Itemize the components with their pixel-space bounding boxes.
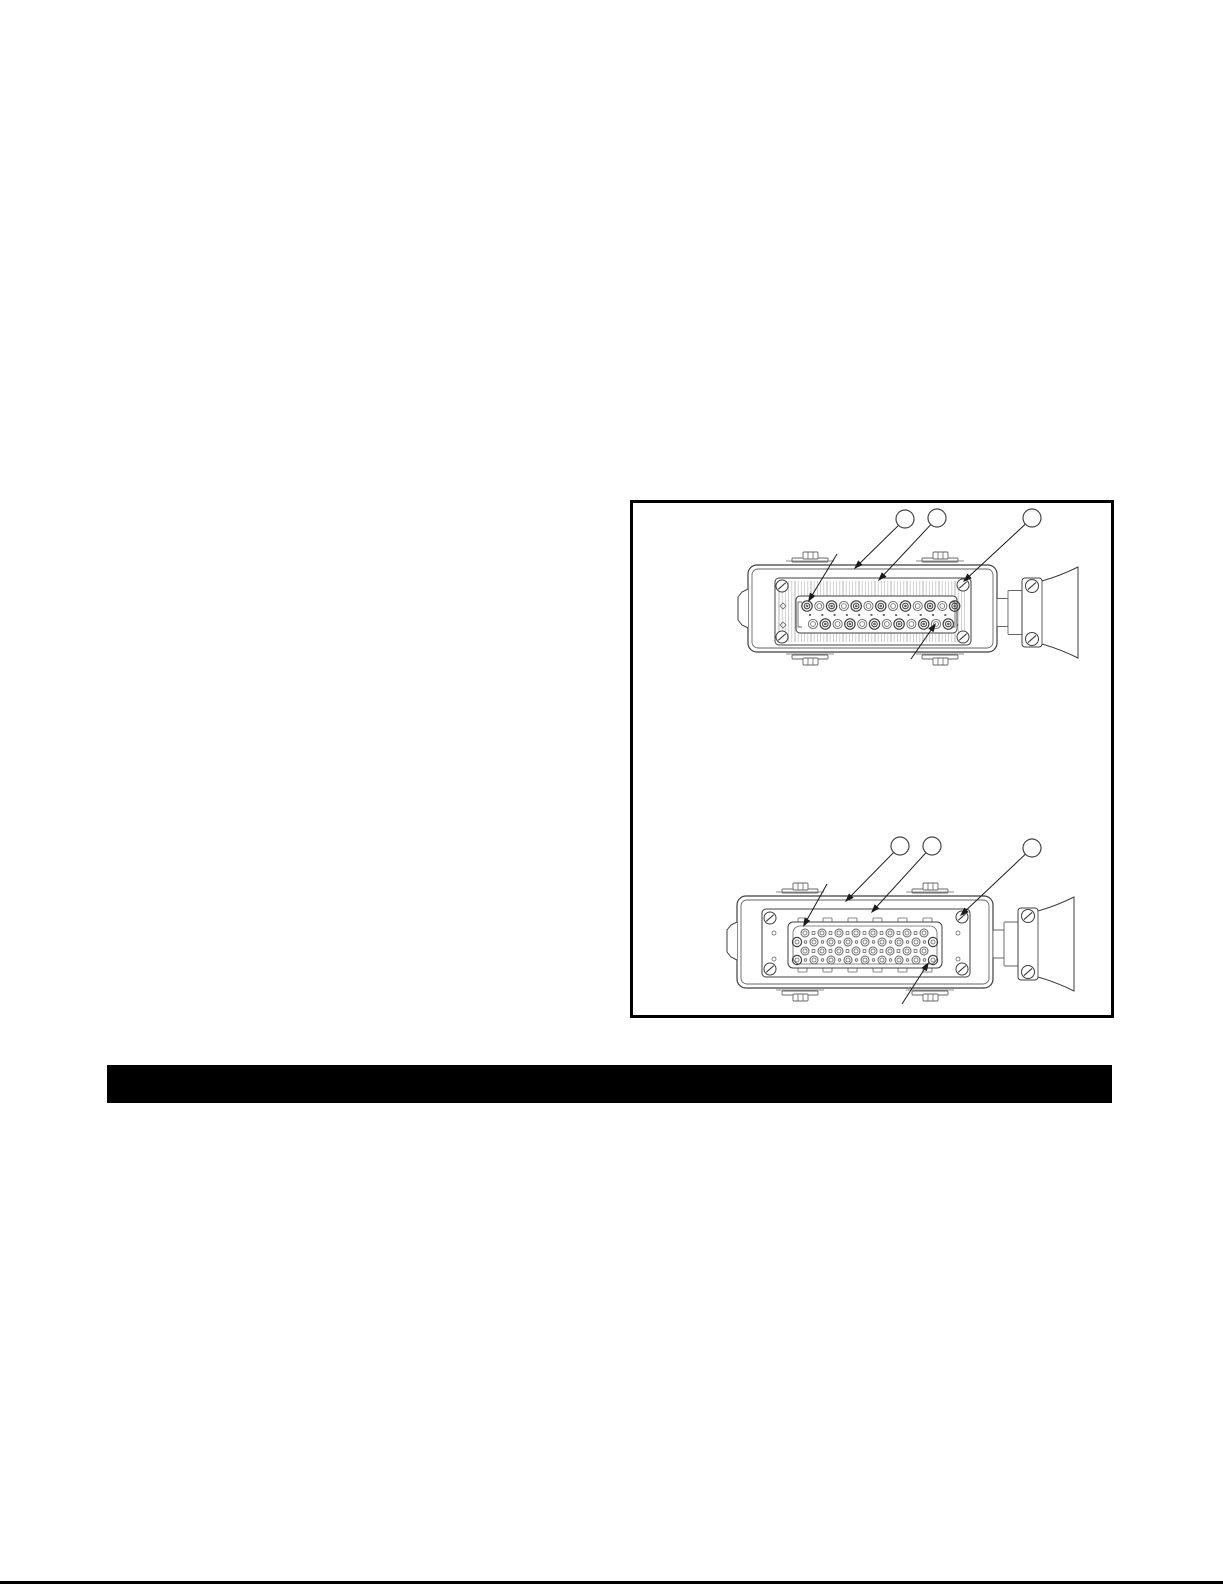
section-divider-bar (107, 1065, 1112, 1103)
page-footer-rule (0, 1581, 1223, 1584)
connector-diagram-4row (727, 883, 1074, 1001)
callout-balloon (1023, 509, 1041, 527)
callout-balloon (1023, 839, 1041, 857)
document-page (0, 0, 1223, 1585)
callout-balloon (896, 510, 914, 528)
callout-balloon (891, 837, 909, 855)
figure-frame (630, 500, 1114, 1018)
callout-balloon (928, 509, 946, 527)
connector-figure (633, 503, 1111, 1015)
callout-balloon (923, 837, 941, 855)
connector-diagram-2row (738, 552, 1078, 665)
